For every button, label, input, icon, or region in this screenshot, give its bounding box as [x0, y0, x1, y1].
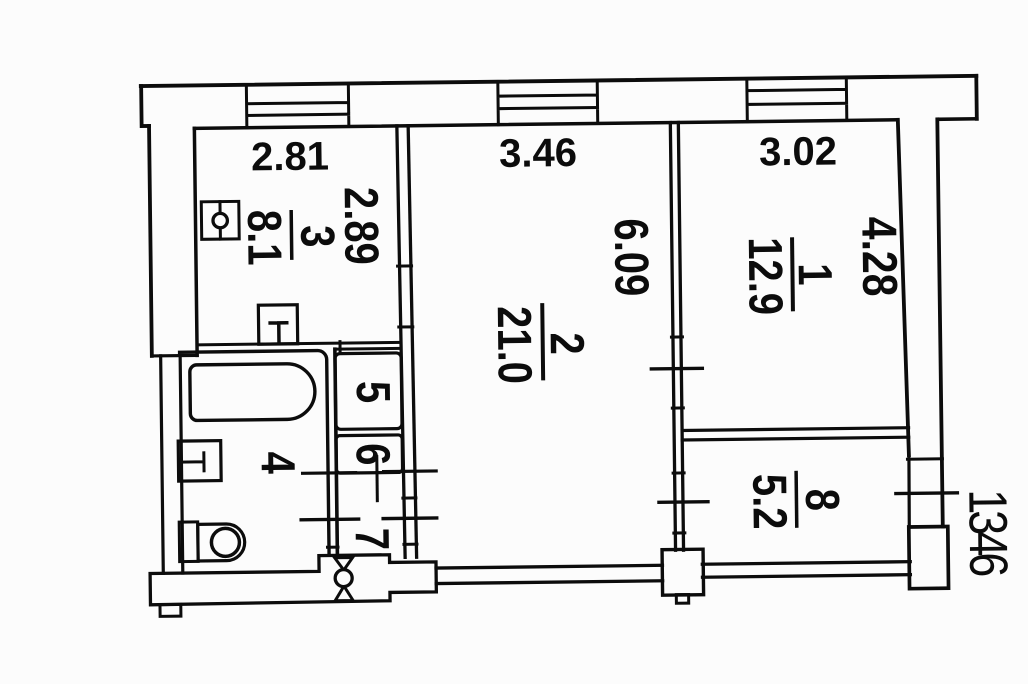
- svg-text:8: 8: [795, 488, 848, 511]
- svg-text:5: 5: [346, 381, 399, 404]
- svg-text:6: 6: [346, 443, 399, 466]
- svg-text:3.02: 3.02: [759, 129, 837, 174]
- svg-text:1: 1: [788, 263, 841, 286]
- svg-text:3: 3: [290, 225, 343, 248]
- svg-text:2.81: 2.81: [251, 134, 329, 179]
- svg-text:12.9: 12.9: [738, 237, 792, 315]
- svg-text:1346: 1346: [957, 489, 1019, 577]
- svg-text:21.0: 21.0: [487, 306, 541, 384]
- svg-text:5.2: 5.2: [742, 473, 795, 529]
- svg-text:7: 7: [345, 528, 398, 551]
- svg-text:2: 2: [540, 332, 593, 355]
- svg-text:4: 4: [251, 451, 304, 475]
- svg-text:6.09: 6.09: [604, 218, 658, 296]
- svg-text:8.1: 8.1: [237, 210, 290, 266]
- svg-text:4.28: 4.28: [851, 216, 907, 296]
- svg-text:3.46: 3.46: [499, 131, 577, 176]
